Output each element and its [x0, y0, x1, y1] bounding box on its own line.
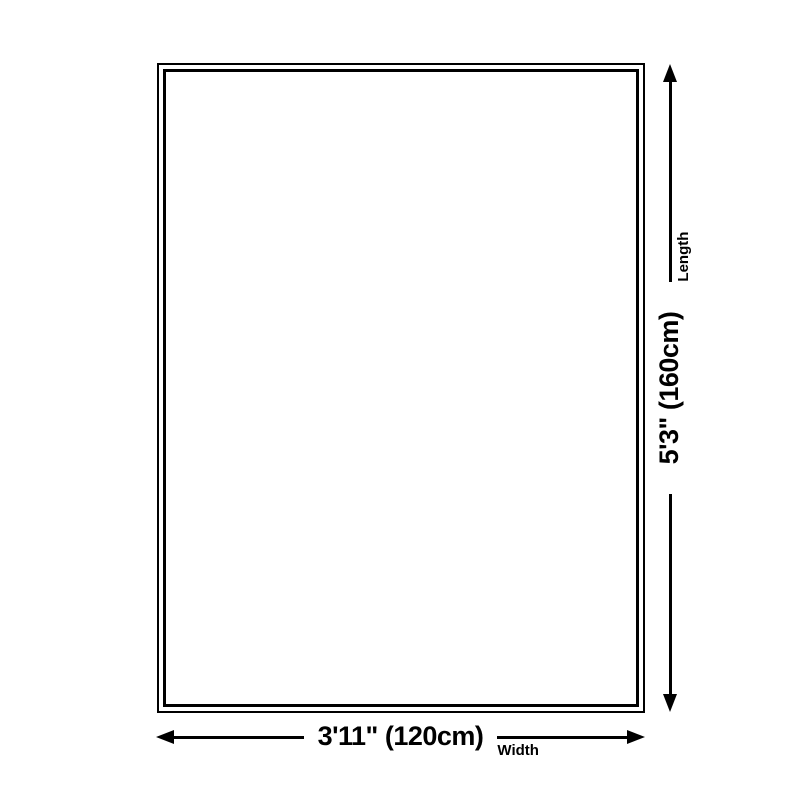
- arrowhead-right-icon: [627, 730, 645, 744]
- length-dimension-line-upper: Length: [646, 82, 694, 282]
- width-dimension-line: [174, 736, 304, 739]
- length-value-label: 5'3" (160cm): [656, 312, 683, 465]
- length-dimension-line: [669, 494, 672, 694]
- arrowhead-left-icon: [156, 730, 174, 744]
- arrowhead-up-icon: [663, 64, 677, 82]
- width-value-label: 3'11" (120cm): [318, 723, 484, 750]
- rug-inner-border: [163, 69, 639, 707]
- width-dimension-line-right: Width: [497, 713, 627, 761]
- width-dimension-line: [497, 736, 627, 739]
- length-dimension-line: [669, 82, 672, 282]
- rug-outline: [157, 63, 645, 713]
- width-dimension-arrow: 3'11" (120cm) Width: [156, 713, 645, 761]
- length-axis-label: Length: [676, 232, 691, 282]
- arrowhead-down-icon: [663, 694, 677, 712]
- dimension-diagram: 5'3" (160cm) Length 3'11" (120cm) Width: [0, 0, 800, 800]
- width-axis-label: Width: [497, 743, 539, 758]
- length-dimension-arrow: 5'3" (160cm) Length: [646, 64, 694, 712]
